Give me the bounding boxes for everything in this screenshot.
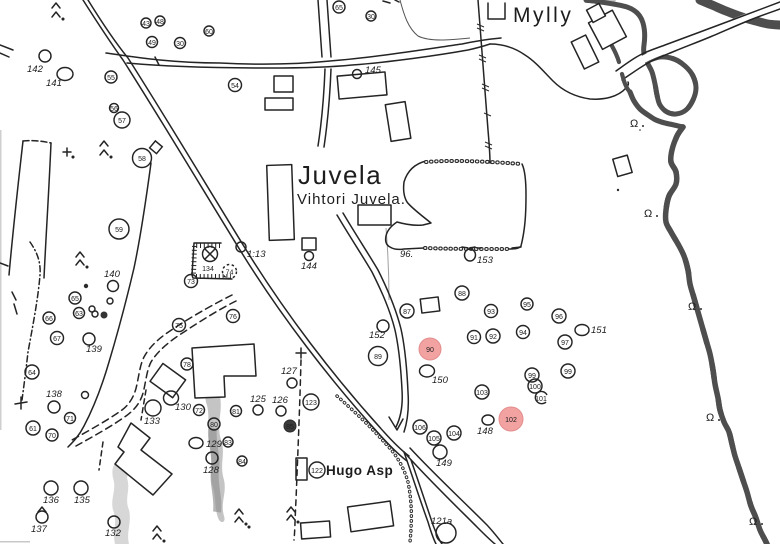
svg-text:99: 99: [564, 369, 572, 376]
svg-text:105: 105: [428, 436, 440, 443]
svg-text:81: 81: [232, 409, 240, 416]
svg-text:133: 133: [144, 416, 161, 427]
svg-text:100: 100: [529, 384, 541, 391]
svg-text:65: 65: [71, 296, 79, 303]
svg-text:90: 90: [426, 347, 434, 354]
svg-text:149: 149: [436, 458, 453, 469]
svg-text:Ω: Ω: [706, 412, 714, 424]
svg-text:56: 56: [110, 106, 118, 113]
svg-text:129: 129: [206, 439, 223, 450]
svg-text:140: 140: [104, 269, 121, 280]
svg-text:61: 61: [29, 426, 37, 433]
svg-text:123: 123: [305, 400, 317, 407]
svg-text:75: 75: [175, 323, 183, 330]
svg-text:141: 141: [46, 78, 62, 89]
svg-text:48: 48: [156, 19, 164, 26]
svg-text:136: 136: [43, 495, 60, 506]
svg-text:30: 30: [176, 41, 184, 48]
svg-text:54: 54: [231, 83, 239, 90]
svg-text:153: 153: [477, 255, 494, 266]
svg-text:104: 104: [448, 431, 460, 438]
svg-text:84: 84: [238, 459, 246, 466]
svg-text:64: 64: [28, 370, 36, 377]
svg-text:78: 78: [183, 362, 191, 369]
svg-text:83: 83: [224, 440, 232, 447]
svg-text:93: 93: [487, 309, 495, 316]
svg-text:Mylly: Mylly: [513, 4, 573, 27]
svg-text:102: 102: [505, 417, 517, 424]
svg-text:132: 132: [105, 528, 122, 539]
svg-text:66: 66: [45, 316, 53, 323]
svg-text:152: 152: [369, 330, 386, 341]
svg-text:134: 134: [202, 266, 214, 273]
svg-text:121a: 121a: [431, 516, 452, 527]
svg-text:125: 125: [250, 394, 267, 405]
svg-text:91: 91: [470, 335, 478, 342]
svg-text:88: 88: [458, 291, 466, 298]
svg-text:67: 67: [53, 336, 61, 343]
svg-text:Ω: Ω: [749, 516, 757, 528]
svg-text:94: 94: [519, 330, 527, 337]
svg-text:150: 150: [432, 375, 449, 386]
svg-text:137: 137: [31, 524, 48, 535]
svg-text:85: 85: [286, 424, 294, 431]
svg-text:135: 135: [74, 495, 91, 506]
svg-text:58: 58: [138, 156, 146, 163]
svg-text:55: 55: [107, 75, 115, 82]
svg-text:70: 70: [48, 433, 56, 440]
svg-text:Vihtori Juvela.: Vihtori Juvela.: [297, 191, 406, 208]
svg-text:89: 89: [374, 354, 382, 361]
svg-text:72: 72: [195, 408, 203, 415]
svg-text:60: 60: [205, 29, 213, 36]
svg-text:101: 101: [535, 396, 547, 403]
svg-text:71: 71: [66, 416, 74, 423]
svg-text:49: 49: [148, 40, 156, 47]
svg-text:96: 96: [555, 314, 563, 321]
svg-text:1:13: 1:13: [247, 249, 266, 260]
svg-text:87: 87: [403, 309, 411, 316]
svg-text:59: 59: [115, 227, 123, 234]
svg-text:Juvela: Juvela: [298, 160, 382, 190]
svg-text:57: 57: [118, 118, 126, 125]
svg-text:65: 65: [335, 5, 343, 12]
svg-text:Hugo Asp: Hugo Asp: [326, 463, 393, 478]
svg-text:74: 74: [226, 270, 234, 277]
svg-text:95: 95: [523, 302, 531, 309]
svg-text:145: 145: [365, 65, 382, 76]
svg-text:144: 144: [301, 261, 317, 272]
svg-text:128: 128: [203, 465, 220, 476]
svg-text:97: 97: [561, 340, 569, 347]
svg-text:126: 126: [272, 395, 289, 406]
svg-text:151: 151: [591, 325, 607, 336]
svg-text:43: 43: [142, 21, 150, 28]
svg-text:138: 138: [46, 389, 63, 400]
svg-text:130: 130: [175, 402, 192, 413]
svg-text:142: 142: [27, 64, 44, 75]
svg-text:139: 139: [86, 344, 103, 355]
svg-text:Ω: Ω: [688, 301, 696, 313]
svg-text:30: 30: [367, 14, 375, 21]
svg-text:73: 73: [187, 279, 195, 286]
svg-text:127: 127: [281, 366, 298, 377]
svg-text:92: 92: [489, 334, 497, 341]
svg-text:96.: 96.: [400, 249, 413, 260]
svg-text:Ω: Ω: [630, 118, 638, 130]
svg-text:122: 122: [311, 468, 323, 475]
svg-text:63: 63: [75, 311, 83, 318]
svg-text:76: 76: [229, 314, 237, 321]
svg-text:Ω: Ω: [644, 208, 652, 220]
svg-text:106: 106: [414, 425, 426, 432]
svg-text:103: 103: [476, 390, 488, 397]
svg-text:80: 80: [210, 422, 218, 429]
svg-text:148: 148: [477, 426, 494, 437]
